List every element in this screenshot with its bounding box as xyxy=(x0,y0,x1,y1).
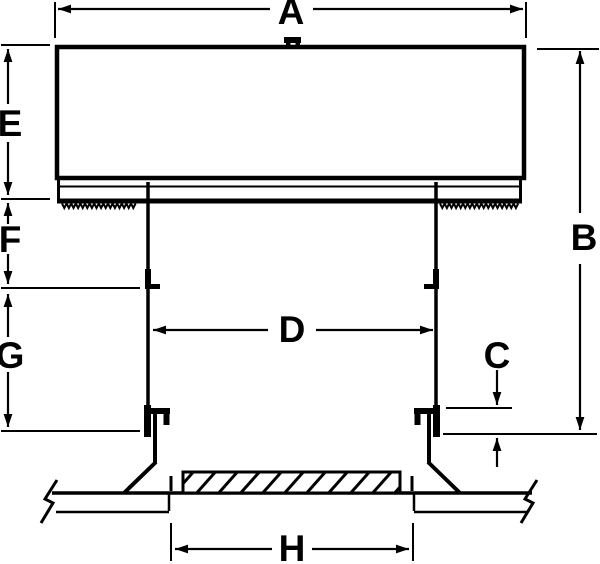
break-symbol-left xyxy=(41,480,57,523)
dimension-F: F xyxy=(0,203,140,288)
dimension-A: A xyxy=(55,0,526,38)
curb-hatch-block xyxy=(172,469,416,496)
cap-outline xyxy=(57,47,524,178)
break-symbol-right xyxy=(521,480,537,523)
diagram-canvas: A B C D E F G xyxy=(0,0,600,564)
base-flashing-right xyxy=(428,462,460,493)
dim-label-f: F xyxy=(0,219,21,260)
dim-label-b: B xyxy=(571,217,598,258)
dimension-G: G xyxy=(0,294,140,431)
handle-leg xyxy=(296,42,301,47)
handle-leg xyxy=(286,42,291,47)
dimension-E: E xyxy=(0,45,50,199)
dim-label-e: E xyxy=(0,103,22,144)
dim-label-c: C xyxy=(484,335,511,376)
roof-section xyxy=(41,469,537,523)
bird-screen-right xyxy=(440,204,518,209)
bird-screen-left xyxy=(62,204,136,209)
base-flashing-left xyxy=(124,462,156,493)
dim-label-g: G xyxy=(0,335,24,376)
hood-cap xyxy=(57,37,524,208)
dim-label-h: H xyxy=(279,528,306,564)
dim-label-d: D xyxy=(279,309,306,350)
ventilator-dimension-drawing: A B C D E F G xyxy=(0,0,600,564)
dimension-C: C xyxy=(446,335,512,467)
dimension-H: H xyxy=(171,523,413,564)
dim-label-a: A xyxy=(278,0,305,32)
dimension-D: D xyxy=(153,309,433,350)
